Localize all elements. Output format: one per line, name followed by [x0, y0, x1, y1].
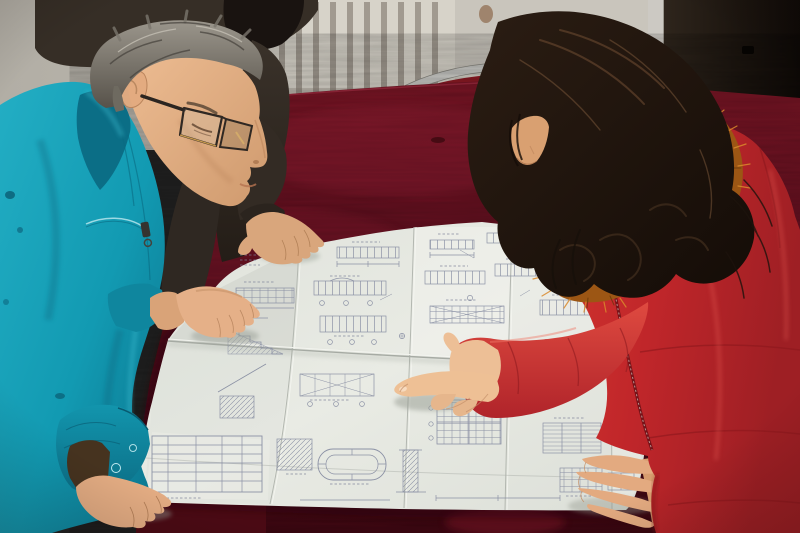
- photo-stage: Three people lean over a large folded co…: [0, 0, 800, 533]
- scene-photo: [0, 0, 800, 533]
- vignette: [0, 0, 800, 533]
